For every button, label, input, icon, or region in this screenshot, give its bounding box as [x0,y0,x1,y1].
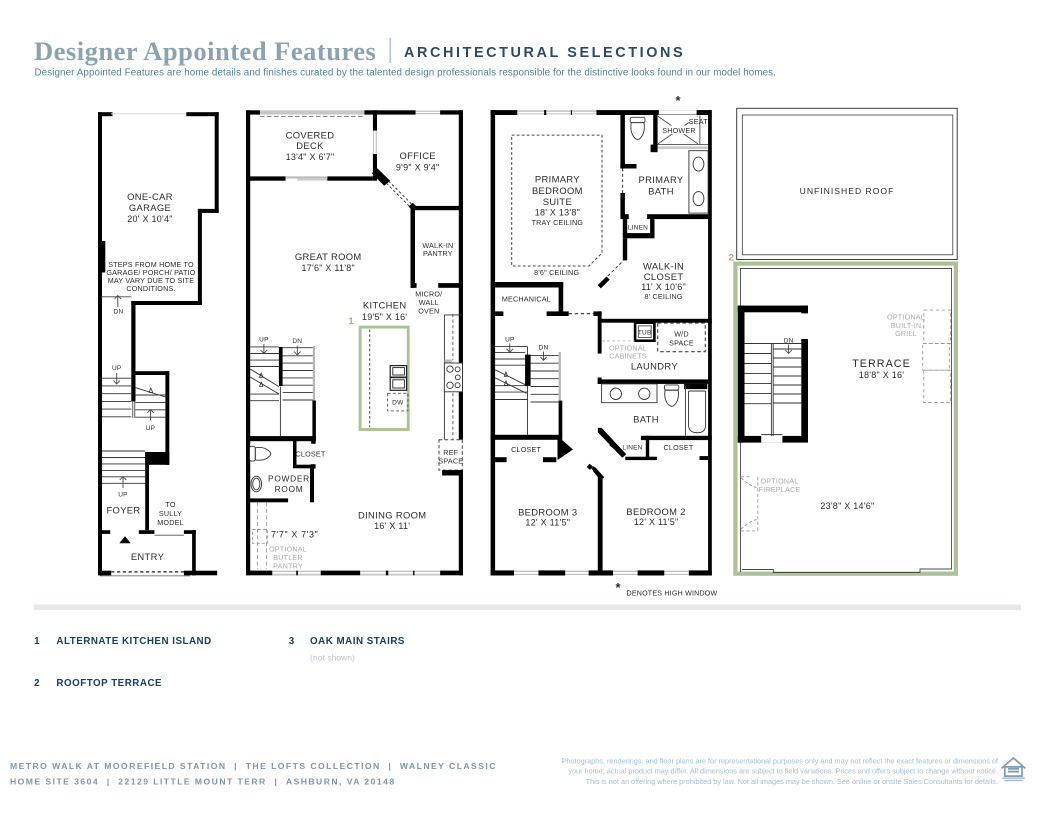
svg-text:ARCHITECTURAL SELECTIONS: ARCHITECTURAL SELECTIONS [404,45,685,61]
svg-text:COVERED: COVERED [286,129,335,140]
svg-text:18' X 13'8": 18' X 13'8" [535,207,580,217]
svg-text:SUITE: SUITE [543,196,572,207]
svg-text:2: 2 [34,678,40,689]
svg-text:DW: DW [392,399,404,406]
svg-text:METRO WALK AT MOOREFIELD STATI: METRO WALK AT MOOREFIELD STATION | THE L… [10,761,497,771]
svg-text:UP: UP [112,365,121,372]
svg-text:UP: UP [259,337,268,344]
svg-text:DN: DN [539,345,549,352]
svg-text:SEAT: SEAT [689,117,708,126]
svg-text:PANTRY: PANTRY [273,562,303,571]
svg-text:SPACE: SPACE [669,339,694,348]
svg-text:DN: DN [114,309,124,316]
svg-text:SPACE: SPACE [438,457,463,466]
svg-text:TUB: TUB [638,329,652,336]
svg-text:OVEN: OVEN [418,307,439,316]
svg-text:CLOSET: CLOSET [511,445,541,454]
svg-text:1: 1 [348,316,354,327]
svg-text:FIREPLACE: FIREPLACE [759,485,801,494]
svg-text:20' X 10'4": 20' X 10'4" [127,214,172,224]
svg-text:7'7" X 7'3": 7'7" X 7'3" [271,529,318,539]
svg-text:DINING ROOM: DINING ROOM [358,510,426,521]
svg-text:17'6" X 11'8": 17'6" X 11'8" [301,263,354,273]
svg-text:CABINETS: CABINETS [609,352,647,361]
svg-text:HOME SITE 3604 | 22129 LITTL: HOME SITE 3604 | 22129 LITTLE MOUNT TERR… [10,776,396,786]
svg-text:MECHANICAL: MECHANICAL [502,295,551,304]
svg-text:GREAT ROOM: GREAT ROOM [295,251,362,262]
svg-text:CONDITIONS.: CONDITIONS. [126,284,175,293]
svg-text:ENTRY: ENTRY [131,551,165,562]
svg-text:BATH: BATH [648,185,674,196]
svg-text:8' CEILING: 8' CEILING [645,292,683,301]
svg-text:PRIMARY: PRIMARY [535,174,580,185]
svg-text:16' X 11': 16' X 11' [374,521,410,531]
svg-text:UP: UP [505,337,514,344]
svg-text:TRAY CEILING: TRAY CEILING [532,218,584,227]
svg-text:MODEL: MODEL [157,518,184,527]
svg-text:CLOSET: CLOSET [296,450,326,459]
svg-text:UP: UP [146,425,155,432]
svg-text:TERRACE: TERRACE [852,358,911,370]
svg-text:CLOSET: CLOSET [664,443,694,452]
svg-text:23'8" X 14'6": 23'8" X 14'6" [820,501,874,511]
svg-text:POWDER: POWDER [268,474,310,484]
svg-text:Photographs, renderings, and f: Photographs, renderings, and floor plans… [562,757,999,766]
svg-text:CLOSET: CLOSET [644,271,684,282]
svg-text:DN: DN [292,338,302,345]
svg-text:KITCHEN: KITCHEN [363,300,407,311]
svg-text:UP: UP [118,492,127,499]
svg-text:PRIMARY: PRIMARY [639,174,684,185]
svg-text:W/D: W/D [674,330,689,339]
svg-text:UNFINISHED ROOF: UNFINISHED ROOF [800,186,895,196]
svg-text:LINEN: LINEN [628,225,648,232]
svg-text:GRILL: GRILL [895,329,917,338]
svg-text:ONE-CAR: ONE-CAR [127,191,173,202]
svg-text:your home; actual product may: your home; actual product may differ. Al… [568,767,998,776]
svg-text:FOYER: FOYER [106,505,140,516]
svg-text:BATH: BATH [633,413,659,424]
svg-text:SHOWER: SHOWER [662,126,696,135]
svg-text:1: 1 [34,636,40,647]
svg-text:ROOM: ROOM [275,484,304,494]
svg-text:DECK: DECK [296,140,324,151]
svg-text:Designer Appointed Features ar: Designer Appointed Features are home det… [35,68,776,79]
svg-text:OAK MAIN STAIRS: OAK MAIN STAIRS [310,636,405,647]
svg-text:19'5" X 16': 19'5" X 16' [362,312,407,322]
svg-text:12' X 11'5": 12' X 11'5" [525,518,570,528]
svg-text:PANTRY: PANTRY [423,249,453,258]
svg-text:BEDROOM 2: BEDROOM 2 [626,506,685,517]
svg-text:3: 3 [289,636,295,647]
svg-text:TO: TO [165,500,175,509]
svg-text:GARAGE: GARAGE [129,202,171,213]
svg-text:LINEN: LINEN [622,444,642,451]
svg-text:12' X 11'5": 12' X 11'5" [634,517,679,527]
svg-text:(not shown): (not shown) [310,653,355,663]
svg-text:This is not an offering where: This is not an offering where prohibited… [586,777,998,786]
svg-text:BEDROOM: BEDROOM [532,185,583,196]
svg-text:DENOTES HIGH WINDOW: DENOTES HIGH WINDOW [627,589,718,597]
svg-text:OFFICE: OFFICE [399,150,435,161]
svg-text:LAUNDRY: LAUNDRY [631,360,678,371]
svg-text:Designer Appointed Features: Designer Appointed Features [34,36,376,66]
svg-text:BEDROOM 3: BEDROOM 3 [518,506,577,517]
svg-text:ROOFTOP TERRACE: ROOFTOP TERRACE [56,678,162,689]
svg-text:SULLY: SULLY [159,509,182,518]
svg-text:2: 2 [729,253,734,264]
svg-text:ALTERNATE KITCHEN ISLAND: ALTERNATE KITCHEN ISLAND [56,636,211,647]
svg-text:8'6" CEILING: 8'6" CEILING [534,268,579,277]
svg-text:18'8" X 16': 18'8" X 16' [859,370,904,380]
svg-text:9'9" X 9'4": 9'9" X 9'4" [396,162,440,172]
svg-text:11' X 10'6": 11' X 10'6" [641,282,686,292]
svg-text:13'4" X 6'7": 13'4" X 6'7" [286,152,335,162]
